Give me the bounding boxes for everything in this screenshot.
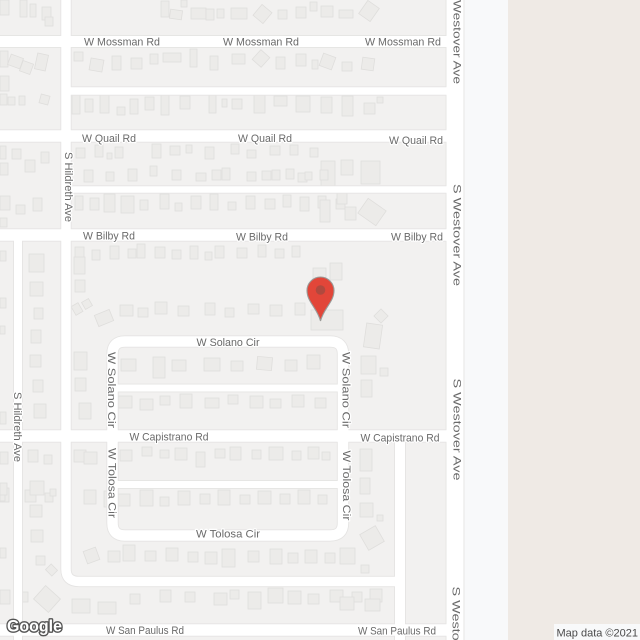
- svg-text:W Bilby Rd: W Bilby Rd: [236, 232, 288, 244]
- svg-text:W Bilby Rd: W Bilby Rd: [83, 231, 135, 243]
- svg-text:W Mossman Rd: W Mossman Rd: [84, 37, 160, 49]
- svg-text:W Solano Cir: W Solano Cir: [105, 352, 117, 428]
- svg-text:W Tolosa Cir: W Tolosa Cir: [196, 529, 260, 541]
- svg-text:W Quail Rd: W Quail Rd: [82, 133, 136, 145]
- svg-text:S Westover Ave: S Westover Ave: [450, 587, 462, 640]
- svg-text:S Hildreth Ave: S Hildreth Ave: [62, 152, 74, 222]
- svg-text:W Bilby Rd: W Bilby Rd: [391, 232, 443, 244]
- svg-text:W Solano Cir: W Solano Cir: [197, 337, 260, 349]
- svg-text:S Westover Ave: S Westover Ave: [451, 379, 463, 481]
- svg-text:W Tolosa Cir: W Tolosa Cir: [106, 448, 118, 518]
- svg-text:W Tolosa Cir: W Tolosa Cir: [340, 451, 352, 521]
- svg-text:Map data ©2021: Map data ©2021: [557, 628, 639, 640]
- svg-text:S Hildreth Ave: S Hildreth Ave: [11, 392, 23, 462]
- svg-text:S Westover Ave: S Westover Ave: [451, 184, 463, 286]
- svg-text:W Solano Cir: W Solano Cir: [340, 352, 352, 428]
- svg-text:W Capistrano Rd: W Capistrano Rd: [361, 433, 440, 445]
- svg-text:W San Paulus Rd: W San Paulus Rd: [358, 626, 436, 638]
- svg-text:W San Paulus Rd: W San Paulus Rd: [106, 625, 184, 637]
- svg-text:Google: Google: [7, 617, 62, 636]
- svg-text:W Mossman Rd: W Mossman Rd: [365, 37, 441, 49]
- svg-text:W Mossman Rd: W Mossman Rd: [223, 37, 299, 49]
- svg-text:Westover Ave: Westover Ave: [451, 0, 463, 84]
- svg-text:W Capistrano Rd: W Capistrano Rd: [130, 432, 209, 444]
- svg-text:W Quail Rd: W Quail Rd: [389, 135, 443, 147]
- svg-text:W Quail Rd: W Quail Rd: [238, 133, 292, 145]
